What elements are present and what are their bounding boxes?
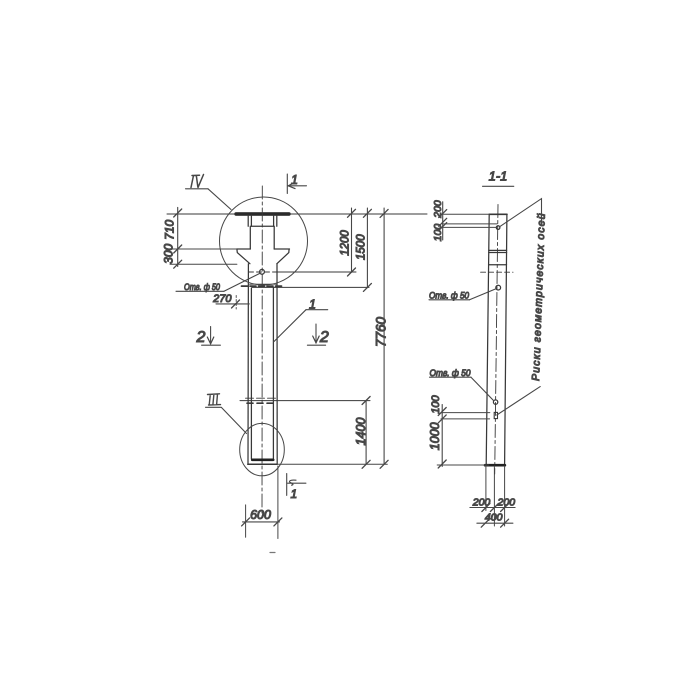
- svg-text:400: 400: [485, 511, 503, 523]
- svg-text:2: 2: [196, 329, 206, 346]
- svg-text:200: 200: [472, 497, 491, 509]
- svg-text:1400: 1400: [354, 418, 368, 446]
- svg-text:200: 200: [497, 497, 516, 509]
- svg-text:1000: 1000: [428, 422, 442, 450]
- svg-text:200: 200: [432, 200, 444, 219]
- svg-text:1: 1: [291, 173, 298, 187]
- svg-text:1-1: 1-1: [489, 169, 508, 184]
- svg-text:1: 1: [309, 298, 316, 312]
- svg-text:100: 100: [432, 224, 444, 242]
- svg-text:100: 100: [430, 395, 442, 414]
- svg-text:1500: 1500: [356, 234, 368, 260]
- svg-text:Риски геометрических осей: Риски геометрических осей: [530, 212, 548, 381]
- svg-text:600: 600: [250, 508, 271, 522]
- svg-text:710: 710: [163, 219, 177, 239]
- svg-text:1200: 1200: [340, 230, 352, 256]
- svg-text:270: 270: [212, 293, 232, 305]
- svg-text:2: 2: [319, 329, 329, 346]
- svg-text:7760: 7760: [374, 316, 389, 347]
- svg-text:1: 1: [290, 487, 297, 501]
- svg-text:300: 300: [162, 243, 176, 263]
